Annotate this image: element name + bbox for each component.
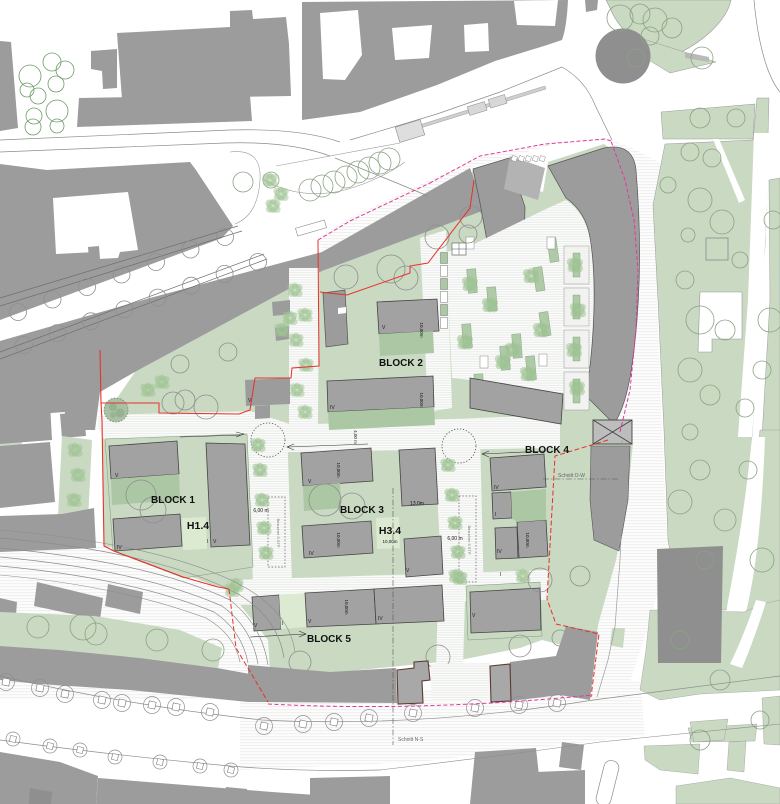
svg-text:BLOCK 3: BLOCK 3 bbox=[340, 505, 384, 516]
svg-text:I: I bbox=[495, 512, 496, 518]
svg-text:BLOCK 1: BLOCK 1 bbox=[151, 495, 195, 506]
svg-text:13,0m: 13,0m bbox=[410, 501, 424, 507]
svg-text:10,00m: 10,00m bbox=[382, 539, 397, 544]
svg-text:BLOCK 4: BLOCK 4 bbox=[525, 445, 569, 456]
svg-text:10,00m: 10,00m bbox=[525, 532, 530, 547]
svg-text:Schnitt O-W: Schnitt O-W bbox=[558, 473, 585, 479]
svg-text:IV: IV bbox=[309, 551, 314, 557]
svg-text:IV: IV bbox=[117, 545, 122, 551]
svg-text:H1.4: H1.4 bbox=[187, 520, 209, 532]
svg-text:I: I bbox=[282, 621, 283, 627]
svg-text:BLOCK 5: BLOCK 5 bbox=[307, 634, 351, 645]
svg-text:6,00 m: 6,00 m bbox=[447, 536, 462, 542]
svg-text:10,00m: 10,00m bbox=[336, 532, 341, 547]
svg-text:IV: IV bbox=[497, 549, 502, 555]
svg-text:Besucher 9 STP: Besucher 9 STP bbox=[467, 525, 472, 554]
svg-text:Schnitt N-S: Schnitt N-S bbox=[398, 737, 424, 743]
svg-text:6,00 m: 6,00 m bbox=[253, 508, 268, 514]
svg-text:I: I bbox=[207, 539, 208, 545]
svg-text:Besucher 9 STP: Besucher 9 STP bbox=[276, 518, 281, 547]
svg-text:H3.4: H3.4 bbox=[379, 525, 401, 537]
svg-text:IV: IV bbox=[494, 485, 499, 491]
svg-text:IV: IV bbox=[330, 405, 335, 411]
svg-text:10,00m: 10,00m bbox=[419, 322, 424, 337]
svg-text:BLOCK 2: BLOCK 2 bbox=[379, 358, 423, 369]
svg-text:10,00m: 10,00m bbox=[336, 462, 341, 477]
svg-text:10,00m: 10,00m bbox=[419, 392, 424, 407]
svg-text:I: I bbox=[500, 572, 501, 578]
svg-text:4,00 m: 4,00 m bbox=[353, 430, 358, 444]
svg-text:IV: IV bbox=[378, 616, 383, 622]
svg-text:10,00m: 10,00m bbox=[344, 599, 349, 614]
